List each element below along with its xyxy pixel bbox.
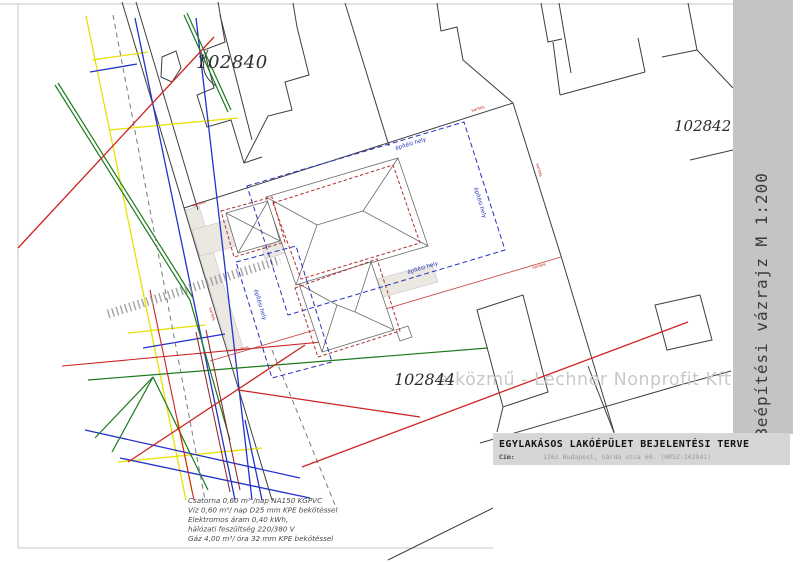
utility-lines-water-seg [135,18,235,500]
building-area-label-left: építési hely [252,289,268,322]
utility-lines-water-seg [85,430,300,478]
parcel-boundaries-seg [655,295,712,350]
utility-lines-electric-seg [196,332,230,492]
building-roof-seg [396,326,412,341]
title-block: EGYLAKÁSOS LAKÓÉPÜLET BEJELENTÉSI TERVE … [493,433,800,562]
parcel-label-102842: 102842 [674,117,731,135]
utility-note-line-2: Víz 0,60 m³/ nap D25 mm KPE bekötéssel [188,506,337,515]
utility-lines-electric-seg [18,37,214,248]
address-value: 1163 Budapest, Gárda utca 60. (HRSZ:1028… [543,453,711,461]
utility-lines-gas-seg [86,16,186,500]
parcel-boundaries-seg [560,72,645,95]
parcel-boundaries-seg [662,50,697,57]
parcel-boundaries-seg [161,51,181,82]
parcel-boundaries-seg [690,150,733,160]
utility-notes: Csatorna 0,60 m³ /nap NA150 KGPVC Víz 0,… [188,496,337,543]
parcel-boundaries-seg [388,508,493,560]
parcel-boundaries-seg [136,2,198,210]
utility-note-line-4: hálózati feszültség 220/380 V [188,525,296,534]
parcel-boundaries-seg [688,3,733,88]
utility-lines-green-seg [58,83,193,298]
building-roof-seg [266,158,428,285]
plan-title: EGYLAKÁSOS LAKÓÉPÜLET BEJELENTÉSI TERVE [499,436,749,450]
utility-note-line-3: Elektromos áram 0,40 kWh, [188,515,288,524]
utility-lines-water-seg [120,458,310,498]
parcel-boundaries-seg [497,407,503,432]
parcel-boundaries-seg [477,295,548,407]
boundary-label-3: kerítés [535,163,544,177]
parcel-boundaries-seg [437,3,513,103]
utility-note-line-1: Csatorna 0,60 m³ /nap NA150 KGPVC [188,496,322,505]
boundary-label-2: kerítés [471,104,485,113]
parcel-boundaries-seg [197,2,262,163]
utility-lines-gas-seg [128,325,205,333]
site-plan: építési hely építési hely építési hely é… [0,0,800,562]
walkway-hatch [108,260,280,314]
parcel-boundaries-seg [559,3,571,73]
parcel-boundaries-seg [638,38,645,72]
watermark-text: e-közmű - Lechner Nonprofit Kft. [437,370,737,390]
parcel-boundaries-seg [345,3,389,146]
scale-band-label: Beépítési vázrajz M 1:200 [752,172,771,438]
utility-note-line-5: Gáz 4,00 m³/ óra 32 mm KPE bekötéssel [188,534,333,543]
utility-lines-electric-seg [128,345,305,462]
parcel-label-102840: 102840 [196,52,268,73]
utility-lines-gas [86,16,262,500]
utility-lines-water-seg [143,334,225,348]
utility-lines-green-seg [55,85,190,300]
utility-lines-telecom-seg [113,15,205,500]
utility-lines-telecom-seg [272,350,335,505]
parcel-boundaries-seg [553,42,560,95]
building-area-label-top: építési hely [395,136,428,152]
parcel-label-102844: 102844 [394,370,455,389]
utility-lines-electric-seg [238,390,420,417]
parcel-boundaries-seg [293,3,297,27]
parcel-boundaries-seg [244,27,309,163]
title-block-mask [493,465,800,562]
parcel-boundaries-seg [220,15,252,140]
utility-lines-electric-seg [62,342,322,366]
address-label: Cím: [499,453,515,461]
parcel-boundaries-seg [122,2,272,500]
boundary-label-4: kerítés [532,261,546,270]
scale-band: Beépítési vázrajz M 1:200 [733,0,793,438]
parcel-boundaries-seg [541,3,562,42]
